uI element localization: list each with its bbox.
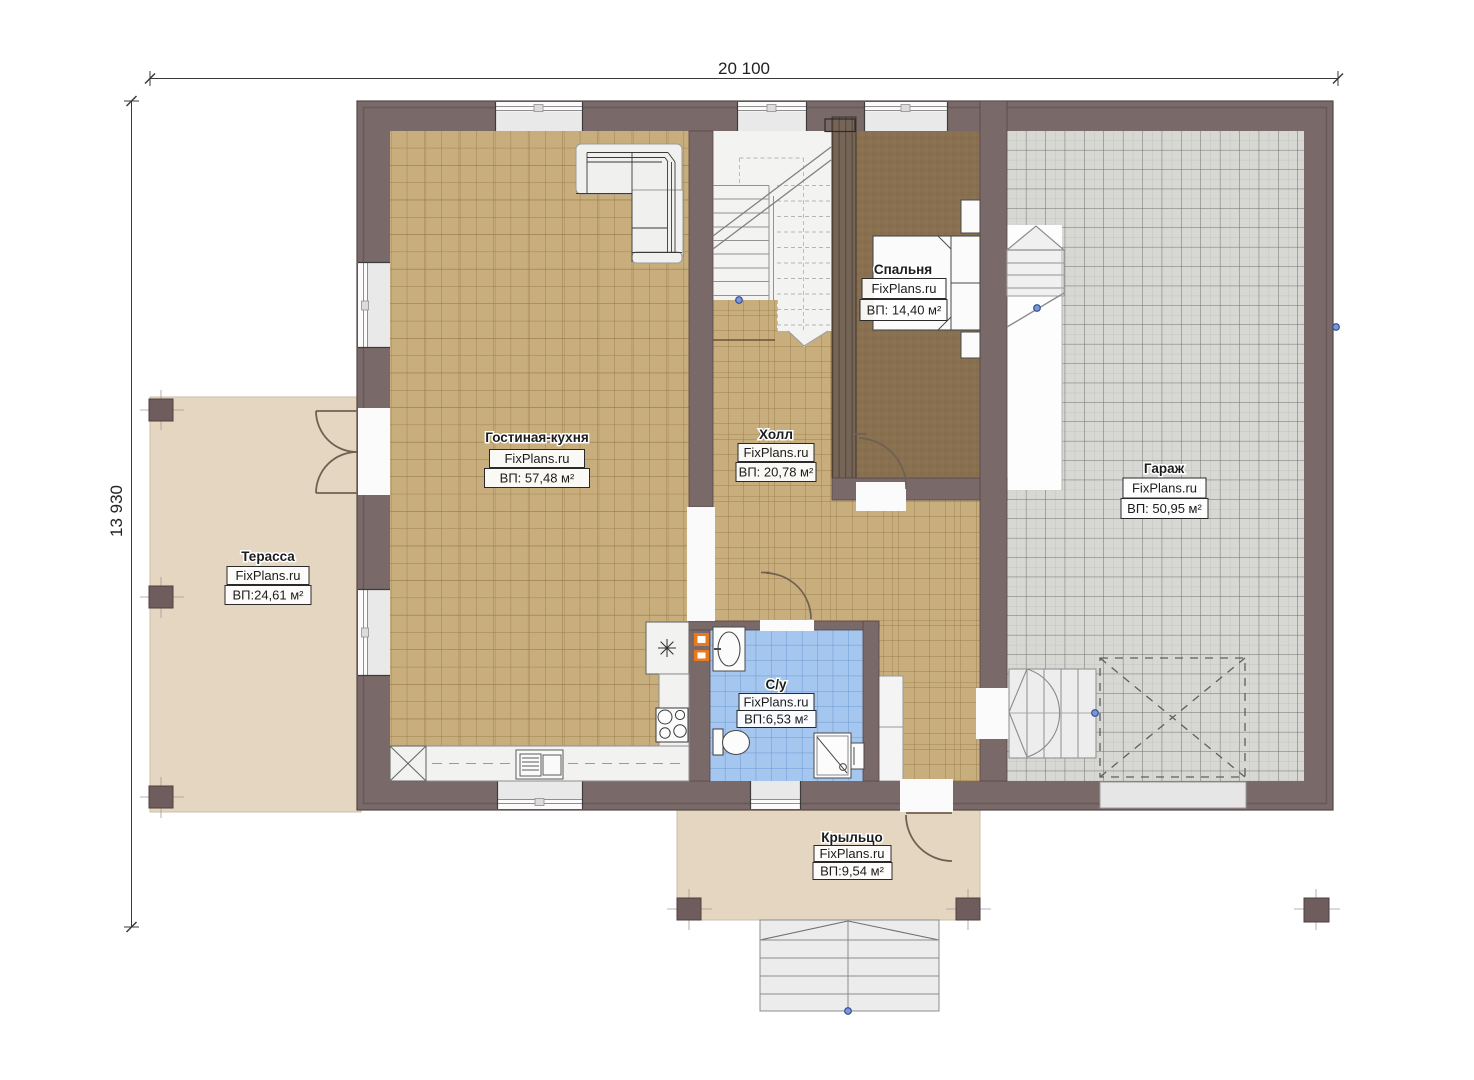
svg-text:ВП: 50,95 м²: ВП: 50,95 м² [1127, 501, 1202, 516]
svg-text:ВП: 57,48 м²: ВП: 57,48 м² [500, 471, 575, 486]
svg-text:FixPlans.ru: FixPlans.ru [743, 445, 808, 460]
svg-text:Холл: Холл [759, 427, 793, 442]
svg-text:Крыльцо: Крыльцо [821, 830, 882, 845]
svg-text:С/у: С/у [765, 677, 787, 692]
svg-text:FixPlans.ru: FixPlans.ru [504, 451, 569, 466]
svg-text:FixPlans.ru: FixPlans.ru [1132, 481, 1197, 496]
svg-text:Терасса: Терасса [241, 549, 295, 564]
svg-text:ВП:24,61 м²: ВП:24,61 м² [232, 588, 304, 603]
svg-text:FixPlans.ru: FixPlans.ru [743, 695, 808, 710]
svg-text:Спальня: Спальня [874, 262, 932, 277]
svg-text:FixPlans.ru: FixPlans.ru [871, 281, 936, 296]
svg-text:Гостиная-кухня: Гостиная-кухня [485, 430, 588, 445]
svg-text:ВП:9,54 м²: ВП:9,54 м² [820, 864, 884, 879]
svg-text:20 100: 20 100 [718, 59, 770, 78]
svg-text:FixPlans.ru: FixPlans.ru [819, 846, 884, 861]
svg-text:Гараж: Гараж [1144, 461, 1185, 476]
svg-text:ВП:6,53 м²: ВП:6,53 м² [744, 712, 808, 727]
svg-text:ВП: 20,78 м²: ВП: 20,78 м² [739, 465, 814, 480]
svg-text:ВП: 14,40 м²: ВП: 14,40 м² [867, 303, 942, 318]
svg-text:13 930: 13 930 [107, 485, 126, 537]
svg-text:FixPlans.ru: FixPlans.ru [235, 568, 300, 583]
